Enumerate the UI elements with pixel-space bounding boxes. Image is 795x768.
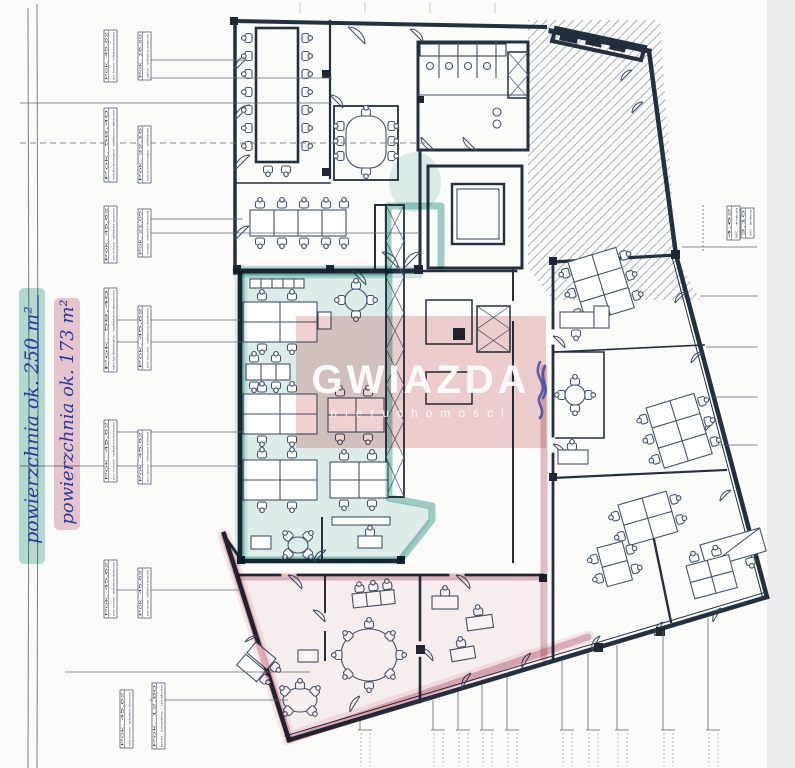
room-tag: 4,62WC · terakota <box>727 206 740 240</box>
room-tag-id: 3,10 <box>742 209 746 236</box>
room-tag: Pok. 58,40sala konferencyjna · wykładzin… <box>104 288 117 372</box>
room-tag-id: Pok. 12,80 <box>153 684 157 747</box>
room-tag: Pok. 45,62pow. biurowa · wykładzina dywa… <box>104 206 117 263</box>
room-tag-id: Pok. 16,20 <box>139 33 143 78</box>
room-tag-desc: sala konferencyjna · wykładzina <box>145 128 149 181</box>
room-tag-desc: WC · terakota <box>734 207 738 238</box>
room-tag-desc: pom. socjalne · terakota <box>159 684 163 747</box>
room-tag: 3,10WC · terakota <box>741 208 754 238</box>
scan-edge-strip <box>767 0 795 768</box>
room-tag-desc: pow. biurowa · wykładzina dywanowa <box>111 32 115 80</box>
room-tag: Pok. 21,05recepcja · wykładzina dywanowa <box>138 209 151 257</box>
room-tag-desc: WC · terakota <box>748 210 752 236</box>
room-tag-desc: pow. biurowa · wykładzina dywanowa <box>111 422 115 480</box>
room-tag-desc: pow. biurowa · wykładzina dywanowa <box>111 208 115 261</box>
room-tag-id: Pok. 45,62 <box>121 691 125 746</box>
room-tag: Pok. 12,80pom. socjalne · terakota <box>152 683 165 749</box>
room-tag-desc: pow. biurowa · wykładzina dywanowa <box>111 562 115 616</box>
annotation-area-250: powierzchnia ok. 250 m² <box>21 306 43 544</box>
room-tag-id: Pok. 58,40 <box>105 109 109 180</box>
room-tag-desc: pow. biurowa · wykładzina dywanowa <box>127 692 131 746</box>
room-tag-desc: pow. biurowa · wykładzina dywanowa <box>145 570 149 616</box>
room-tag-desc: sala konferencyjna · wykładzina dywanowa <box>111 110 115 180</box>
room-tag: Pok. 16,20gabinet · wykładzina dywanowa <box>138 32 151 80</box>
room-tag-desc: sala konferencyjna · wykładzina dywanowa <box>111 290 115 370</box>
room-tag: Pok. 45,62pow. biurowa · wykładzina dywa… <box>104 560 117 618</box>
room-tag-id: Pok. 45,62 <box>105 207 109 261</box>
room-tag-id: Pok. 21,05 <box>139 210 143 255</box>
room-tag-id: 4,62 <box>728 207 732 238</box>
room-tag-id: Pok. 45,62 <box>105 421 109 480</box>
room-tag: Pok. 32,16sala konferencyjna · wykładzin… <box>138 126 151 183</box>
scanned-floor-plan-page: GWIAZDA nieruchomości powierzchnia ok. 2… <box>0 0 795 768</box>
watermark-title: GWIAZDA <box>311 358 530 402</box>
room-tag: Pok. 45,62pow. biurowa · wykładzina dywa… <box>104 30 117 82</box>
room-tag: Pok. 45,62pow. biurowa · wykładzina dywa… <box>138 430 151 484</box>
room-tag-id: Pok. 32,16 <box>139 127 143 181</box>
room-tag: Pok. 45,62pow. biurowa · wykładzina dywa… <box>138 568 151 618</box>
room-tag-id: Pok. 45,62 <box>105 31 109 80</box>
room-tag-id: Pok. 45,62 <box>139 569 143 616</box>
room-tag-desc: pow. biurowa · wykładzina dywanowa <box>145 308 149 368</box>
room-tag: Pok. 58,40sala konferencyjna · wykładzin… <box>104 108 117 182</box>
room-tag-id: Pok. 45,62 <box>139 431 143 482</box>
room-tag-id: Pok. 45,62 <box>105 561 109 616</box>
room-tag-id: Pok. 58,40 <box>105 289 109 370</box>
room-tag: Pok. 45,62pow. biurowa · wykładzina dywa… <box>104 420 117 482</box>
floor-plan-drawing: GWIAZDA nieruchomości powierzchnia ok. 2… <box>0 0 795 768</box>
room-tag-id: Pok. 45,62 <box>139 307 143 368</box>
room-tag: Pok. 45,62pow. biurowa · wykładzina dywa… <box>120 690 133 748</box>
annotation-area-173: powierzchnia ok. 173 m² <box>57 299 78 524</box>
room-tag-desc: pow. biurowa · wykładzina dywanowa <box>145 432 149 482</box>
watermark: GWIAZDA nieruchomości <box>296 316 546 448</box>
watermark-subtitle: nieruchomości <box>330 406 511 420</box>
room-tag-desc: gabinet · wykładzina dywanowa <box>145 34 149 78</box>
room-tag-desc: recepcja · wykładzina dywanowa <box>145 211 149 255</box>
room-tag: Pok. 45,62pow. biurowa · wykładzina dywa… <box>138 306 151 370</box>
